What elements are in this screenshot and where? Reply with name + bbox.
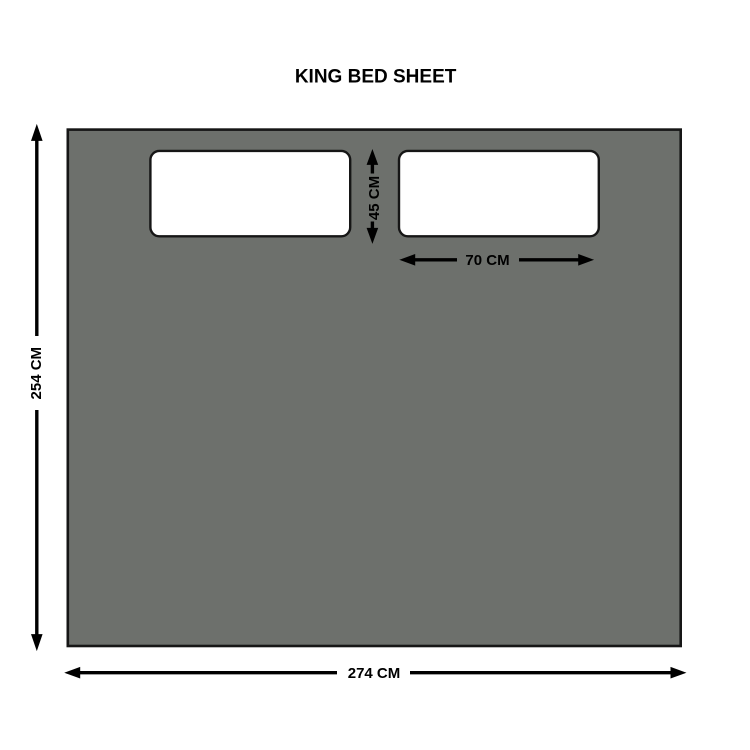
svg-text:70 CM: 70 CM — [465, 252, 509, 269]
svg-text:45 CM: 45 CM — [366, 176, 383, 220]
svg-text:274 CM: 274 CM — [348, 665, 401, 682]
svg-text:254 CM: 254 CM — [28, 347, 45, 400]
svg-text:KING BED SHEET: KING BED SHEET — [295, 67, 457, 88]
